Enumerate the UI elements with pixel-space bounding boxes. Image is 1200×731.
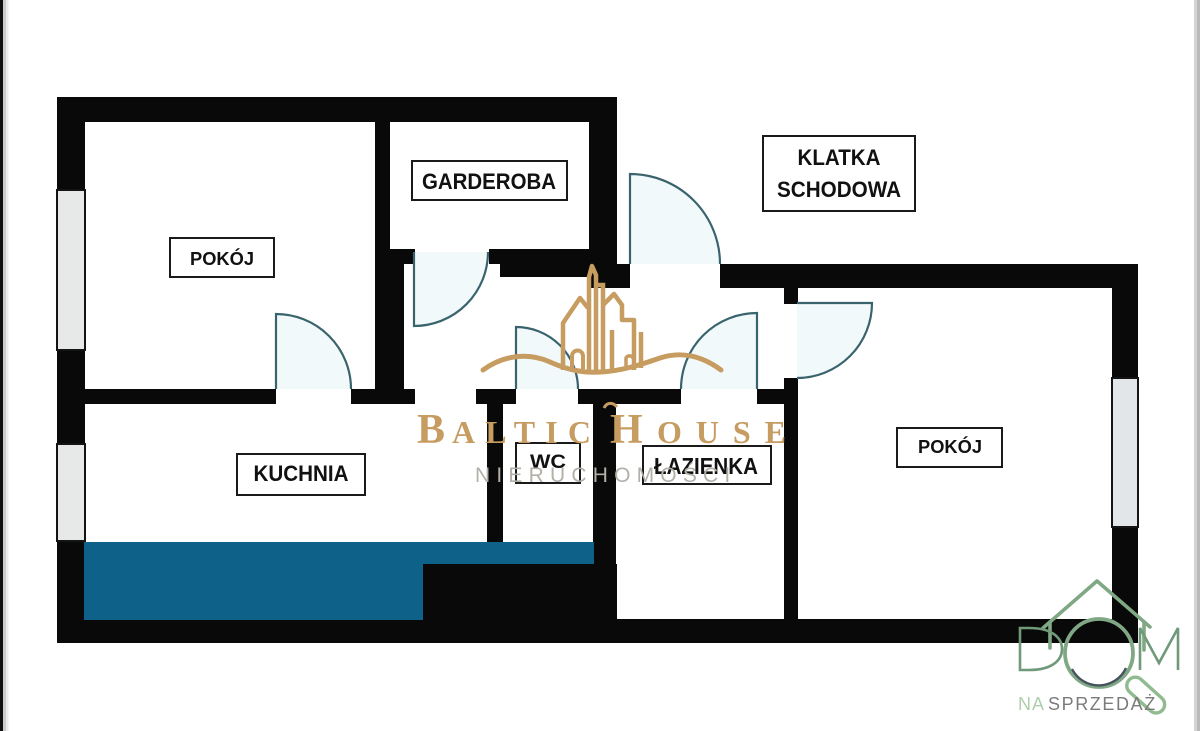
svg-text:H: H xyxy=(610,407,643,453)
svg-text:SPRZEDAŻ: SPRZEDAŻ xyxy=(1048,694,1157,714)
svg-text:ALTIC: ALTIC xyxy=(452,414,591,450)
svg-text:NIERUCHOMOŚCI: NIERUCHOMOŚCI xyxy=(475,463,736,487)
svg-text:KUCHNIA: KUCHNIA xyxy=(254,461,349,486)
svg-text:POKÓJ: POKÓJ xyxy=(918,436,982,457)
svg-text:POKÓJ: POKÓJ xyxy=(190,248,254,269)
svg-text:SCHODOWA: SCHODOWA xyxy=(777,177,901,202)
svg-text:KLATKA: KLATKA xyxy=(798,145,881,170)
svg-text:GARDEROBA: GARDEROBA xyxy=(422,169,556,194)
svg-text:B: B xyxy=(417,407,445,453)
svg-text:NA: NA xyxy=(1018,694,1045,714)
